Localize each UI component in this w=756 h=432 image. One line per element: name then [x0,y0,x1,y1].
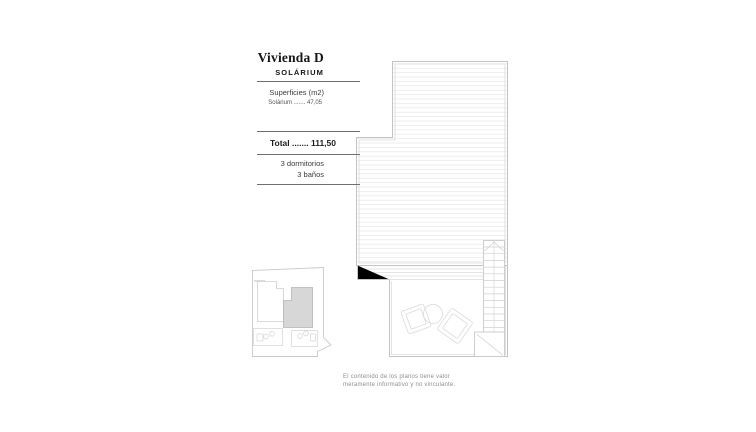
surface-value: 47,05 [307,100,322,106]
surface-leader: ....... [294,100,306,106]
feature-bathrooms: 3 baños [257,170,360,179]
total-value: 111,50 [311,138,336,148]
total-label: Total [270,138,290,148]
divider [257,81,360,82]
parasol-table [424,305,443,324]
disclaimer-line-1: El contenido de los planos tiene valor [343,374,455,382]
disclaimer: El contenido de los planos tiene valor m… [343,374,455,389]
divider [257,184,360,185]
stair-landing [475,332,505,357]
deck-outline [357,62,508,266]
plan-page: Vivienda D SOLÁRIUM Superficies (m2) Sol… [0,0,756,432]
divider [257,154,360,155]
disclaimer-line-2: meramente informativo y no vinculante. [343,382,455,390]
unit-title: Vivienda D [257,50,360,66]
floor-plan-drawing [0,0,756,432]
divider [257,131,360,132]
key-plan [253,268,332,357]
solarium-deck [357,62,508,266]
info-panel: Vivienda D SOLÁRIUM Superficies (m2) Sol… [257,50,360,185]
lounger-left [401,304,432,335]
total-leader: ....... [292,138,309,148]
surface-label: Solárium [268,100,292,106]
total-row: Total ....... 111,50 [257,138,360,148]
deck-steps [358,266,484,280]
unit-subtitle: SOLÁRIUM [257,68,360,77]
feature-bedrooms: 3 dormitorios [257,159,360,168]
surface-row: Solárium ....... 47,05 [257,100,360,106]
surfaces-heading: Superficies (m2) [257,88,360,97]
terrace-furniture [401,304,473,344]
